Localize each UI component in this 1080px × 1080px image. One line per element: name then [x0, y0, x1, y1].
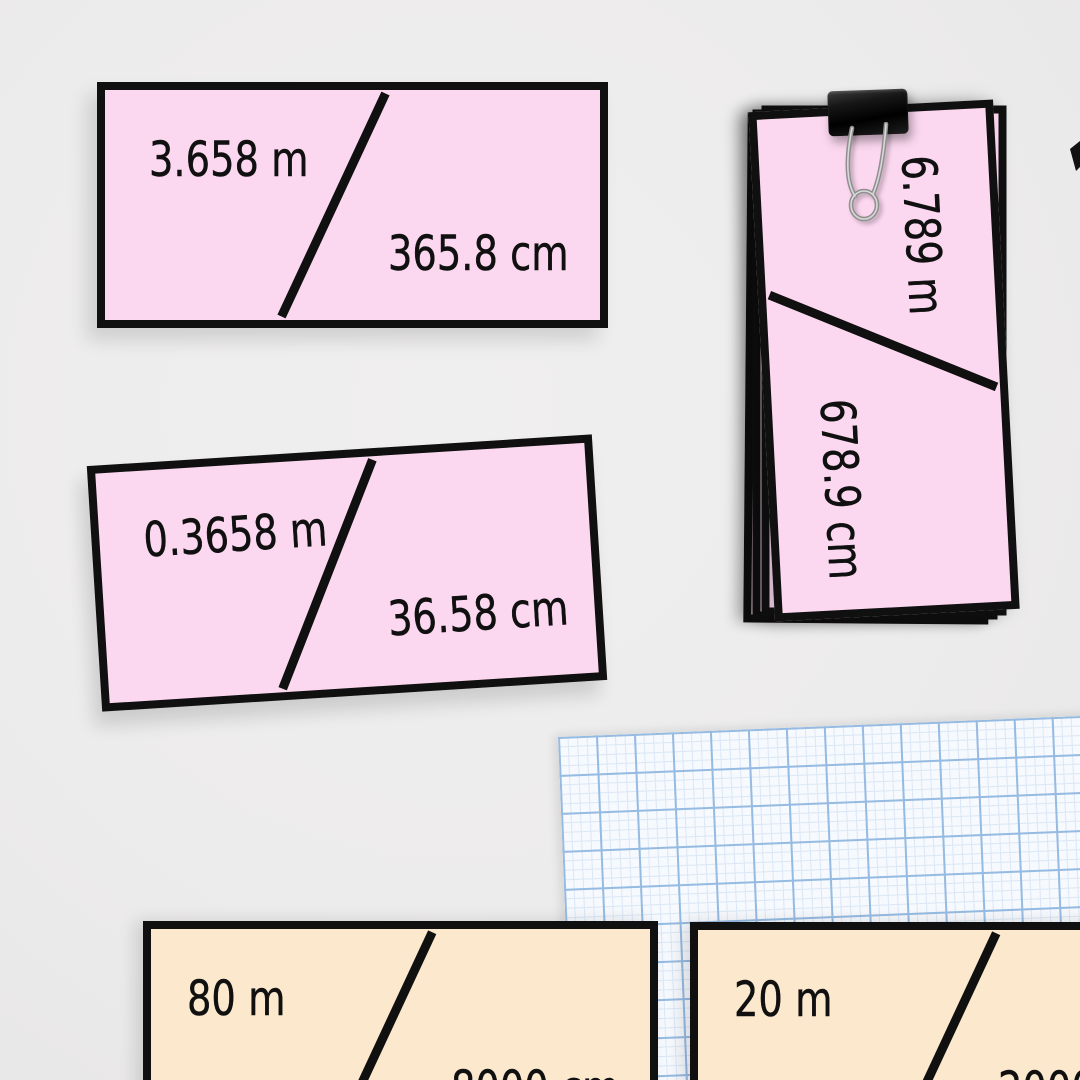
binder-clip-wire-icon: [836, 122, 900, 232]
conversion-card-80-m: 80 m 8000 cm: [143, 921, 658, 1080]
card-divider-line: [891, 931, 1001, 1080]
conversion-card-3-658-m: 3.658 m 365.8 cm: [97, 82, 608, 328]
card-meter-value: 0.3658 m: [142, 505, 329, 564]
card-meter-value: 3.658 m: [149, 136, 309, 184]
partial-card-edge: [1066, 139, 1080, 173]
conversion-card-20-m: 20 m 2000 cm: [690, 922, 1080, 1080]
card-divider-line: [326, 930, 436, 1080]
card-centimeter-value: 36.58 cm: [386, 584, 569, 643]
card-centimeter-value: 2000 cm: [998, 1066, 1080, 1080]
card-meter-value: 20 m: [734, 976, 832, 1024]
card-centimeter-value: 365.8 cm: [388, 230, 569, 278]
card-divider-line: [279, 458, 377, 690]
card-meter-value: 80 m: [187, 975, 285, 1023]
card-divider-line: [277, 92, 389, 319]
card-stack: 6.789 m 678.9 cm: [629, 238, 1080, 483]
card-divider-line: [768, 291, 999, 391]
conversion-card-0-3658-m: 0.3658 m 36.58 cm: [87, 434, 607, 711]
card-centimeter-value: 678.9 cm: [812, 398, 869, 581]
card-centimeter-value: 8000 cm: [451, 1065, 619, 1080]
card-meter-value: 6.789 m: [894, 154, 950, 316]
flashcard-photo-scene: 3.658 m 365.8 cm 0.3658 m 36.58 cm 6.789…: [0, 0, 1080, 1080]
